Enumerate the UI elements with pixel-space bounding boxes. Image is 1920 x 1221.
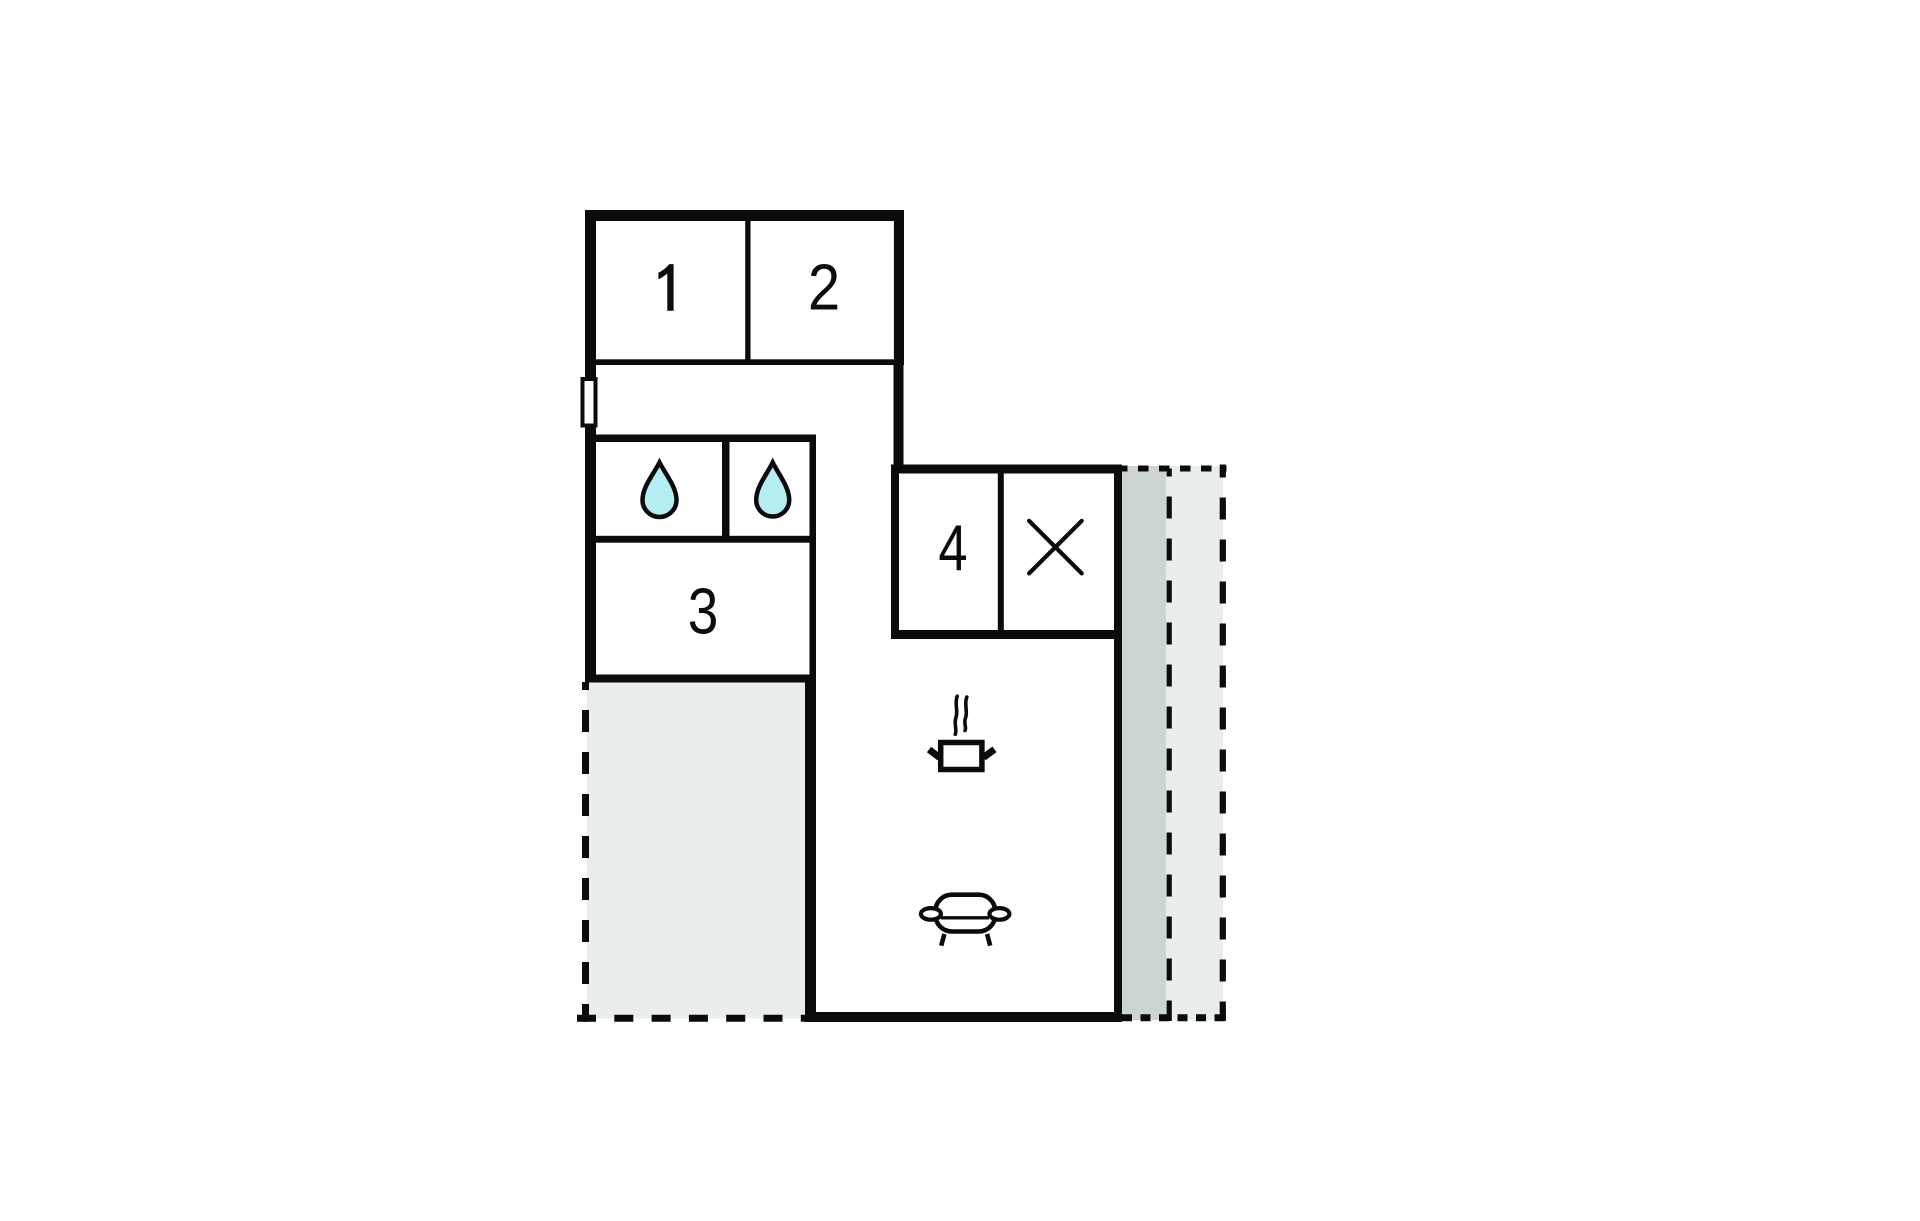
svg-text:2: 2 xyxy=(808,251,840,324)
svg-text:3: 3 xyxy=(688,575,719,648)
svg-text:4: 4 xyxy=(938,511,967,584)
